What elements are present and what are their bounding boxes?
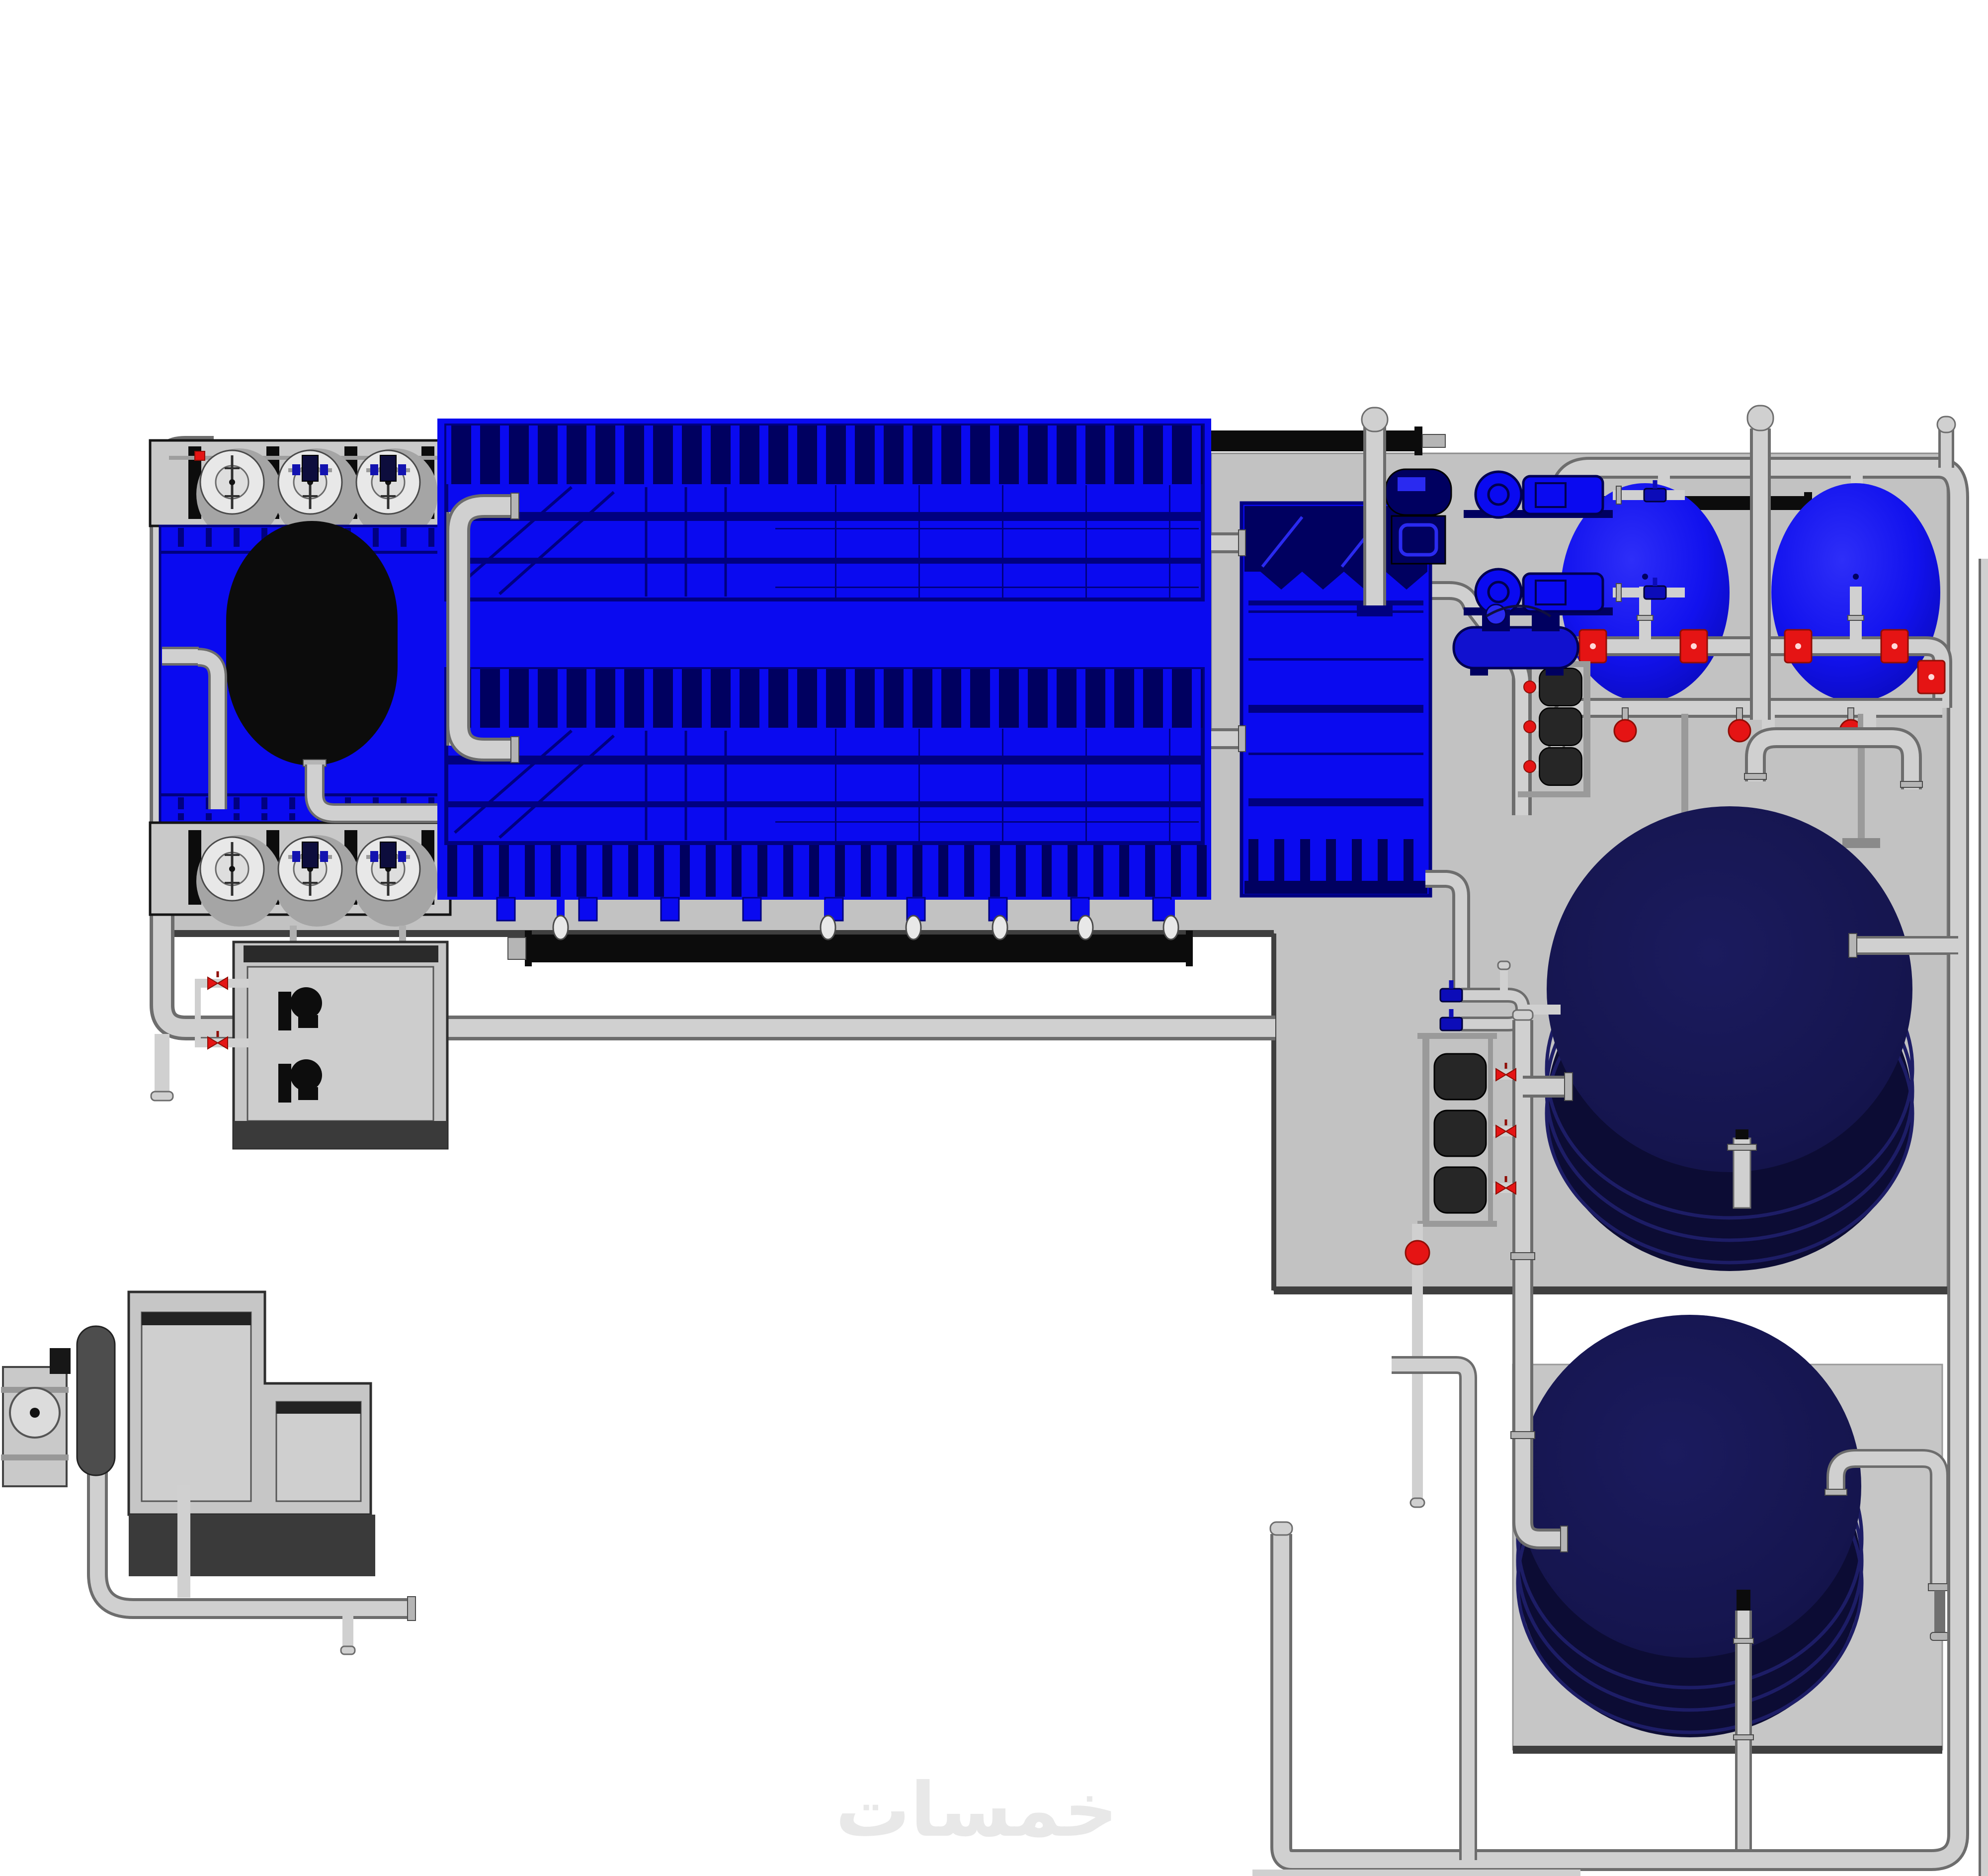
red-valve <box>1785 630 1812 663</box>
inline-pump <box>1434 1110 1486 1156</box>
pipe-cap <box>1362 408 1388 431</box>
inline-pump <box>1539 748 1581 785</box>
pump-box <box>195 926 447 1148</box>
pipe-cap <box>1747 406 1773 430</box>
red-valve <box>1881 630 1908 663</box>
cooling-fan <box>196 835 282 927</box>
tower-basin <box>160 521 447 824</box>
chiller-block <box>437 419 1245 966</box>
pipe-cap <box>1937 417 1955 432</box>
watermark-text: خمسات <box>835 1767 1118 1854</box>
inline-pump <box>1539 708 1581 745</box>
storage-tank-2-top <box>1518 1315 1861 1658</box>
page: خمسات <box>0 0 1988 1876</box>
plant-3d-layout-canvas: خمسات <box>0 0 1988 1876</box>
plate-unit-motor <box>1386 469 1451 564</box>
basin-opening <box>226 521 398 766</box>
pipe-end <box>1270 1522 1292 1535</box>
red-valve <box>1680 630 1707 663</box>
fan-deck-bottom <box>150 823 450 927</box>
storage-tank-1-top <box>1547 806 1912 1172</box>
genset-cart <box>1 1348 71 1486</box>
genset-base <box>129 1515 375 1576</box>
inline-pump <box>1434 1054 1486 1100</box>
red-valve <box>1918 661 1945 693</box>
silencer <box>77 1326 115 1475</box>
chiller-base-fringe <box>437 845 1211 897</box>
red-valve <box>1579 630 1606 663</box>
red-valve <box>1406 1241 1429 1265</box>
inline-pump <box>1434 1167 1486 1213</box>
